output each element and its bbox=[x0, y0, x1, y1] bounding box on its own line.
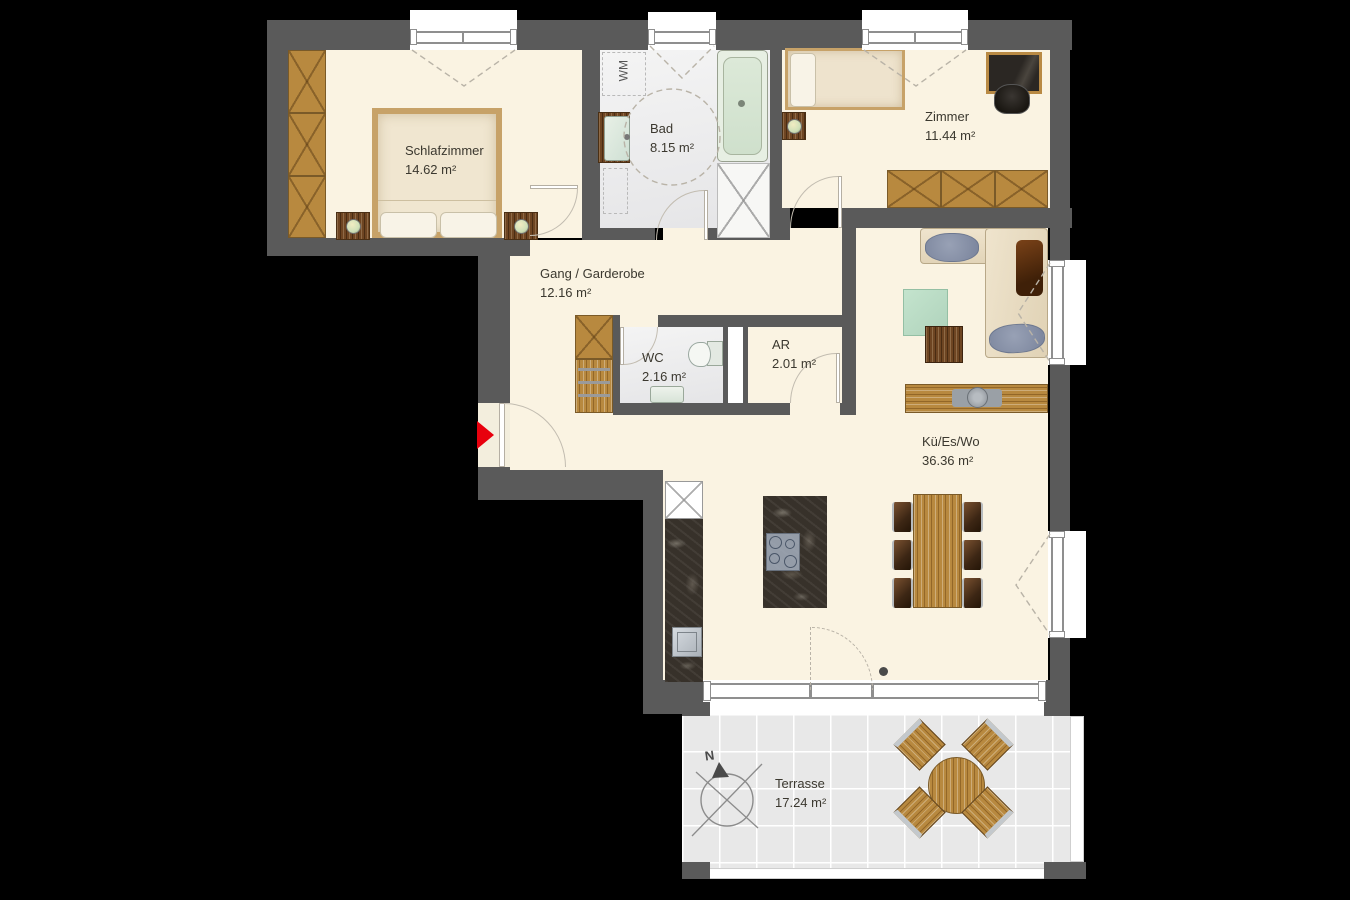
room-label-schlafzimmer: Schlafzimmer 14.62 m² bbox=[405, 142, 484, 180]
wardrobe-icon bbox=[288, 50, 326, 113]
wall bbox=[478, 470, 663, 500]
door-leaf bbox=[836, 353, 840, 403]
wardrobe-icon bbox=[887, 170, 941, 208]
wardrobe-icon bbox=[995, 170, 1048, 208]
window-cap bbox=[1038, 681, 1046, 701]
window-frame bbox=[651, 31, 713, 44]
room-label-ar: AR 2.01 m² bbox=[772, 336, 816, 374]
wall bbox=[643, 476, 663, 690]
wall bbox=[267, 20, 288, 256]
dining-chair-icon bbox=[962, 502, 983, 532]
window-mullion bbox=[462, 31, 464, 44]
towel-radiator bbox=[603, 168, 628, 214]
dining-chair-icon bbox=[892, 578, 913, 608]
wall bbox=[842, 208, 1072, 228]
wall bbox=[743, 315, 748, 415]
wall bbox=[782, 208, 790, 240]
room-name: Zimmer bbox=[925, 109, 969, 124]
window-cap bbox=[1049, 631, 1065, 638]
wall bbox=[658, 315, 848, 327]
sofa-throw bbox=[1016, 240, 1043, 296]
wall bbox=[842, 228, 856, 415]
room-name: Schlafzimmer bbox=[405, 143, 484, 158]
bed-blanket-edge bbox=[378, 200, 496, 201]
wall bbox=[770, 20, 782, 240]
window-cap bbox=[410, 29, 417, 45]
window-cap bbox=[961, 29, 968, 45]
tall-cabinet-icon bbox=[665, 481, 703, 519]
kitchen-sink-basin bbox=[677, 632, 697, 652]
hanger-rail bbox=[578, 381, 610, 384]
wardrobe-icon bbox=[941, 170, 995, 208]
dining-chair-icon bbox=[892, 540, 913, 570]
window-cap bbox=[709, 29, 716, 45]
room-name: AR bbox=[772, 337, 790, 352]
room-area: 36.36 m² bbox=[922, 453, 973, 468]
room-area: 11.44 m² bbox=[925, 128, 975, 143]
window-cap bbox=[1049, 531, 1065, 538]
window-cap bbox=[862, 29, 869, 45]
shower-icon bbox=[717, 163, 770, 238]
window-cap bbox=[648, 29, 655, 45]
wardrobe-icon bbox=[288, 176, 326, 238]
glass-front-frame bbox=[706, 683, 1043, 699]
window-mullion bbox=[914, 31, 916, 44]
dining-chair-icon bbox=[892, 502, 913, 532]
cooktop-burner bbox=[769, 536, 782, 549]
room-label-wc: WC 2.16 m² bbox=[642, 349, 686, 387]
toilet-icon bbox=[688, 342, 711, 367]
terrace-corner-stub bbox=[682, 862, 710, 879]
lamp-icon bbox=[514, 219, 529, 234]
sofa-cushion bbox=[925, 233, 979, 262]
window-frame bbox=[1051, 264, 1064, 361]
hanger-rail bbox=[578, 368, 610, 371]
bed-pillow bbox=[790, 53, 816, 107]
desk-chair-icon bbox=[994, 84, 1030, 114]
bed-pillow bbox=[440, 212, 497, 238]
room-area: 8.15 m² bbox=[650, 140, 694, 155]
room-area: 2.01 m² bbox=[772, 356, 816, 371]
window-cap bbox=[703, 681, 711, 701]
lamp-icon bbox=[787, 119, 802, 134]
floor-terrasse bbox=[682, 714, 1070, 868]
terrace-railing-right bbox=[1070, 716, 1084, 862]
cooktop-burner bbox=[769, 553, 780, 564]
window-cap bbox=[1049, 260, 1065, 267]
door-stop-dot bbox=[879, 667, 888, 676]
wardrobe-icon bbox=[288, 113, 326, 176]
wall bbox=[643, 680, 705, 714]
terrace-corner-stub bbox=[1044, 862, 1086, 879]
window-frame bbox=[1051, 535, 1064, 634]
garderobe-cabinet-icon bbox=[575, 315, 613, 359]
dining-chair-icon bbox=[962, 578, 983, 608]
kitchen-counter bbox=[665, 519, 703, 682]
washing-machine-label: WM bbox=[615, 55, 632, 87]
bathtub-drain bbox=[738, 100, 745, 107]
room-label-kueswo: Kü/Es/Wo 36.36 m² bbox=[922, 433, 980, 471]
room-label-gang: Gang / Garderobe 12.16 m² bbox=[540, 265, 645, 303]
wall bbox=[582, 228, 655, 240]
room-label-bad: Bad 8.15 m² bbox=[650, 120, 694, 158]
door-leaf bbox=[838, 176, 842, 228]
room-area: 17.24 m² bbox=[775, 795, 826, 810]
side-table-icon bbox=[925, 326, 963, 363]
room-name: Kü/Es/Wo bbox=[922, 434, 980, 449]
window-cap bbox=[1049, 358, 1065, 365]
installation-shaft bbox=[728, 327, 743, 403]
window bbox=[410, 10, 517, 50]
terrace-door-leaf bbox=[810, 627, 811, 690]
room-name: WC bbox=[642, 350, 664, 365]
dining-chair-icon bbox=[962, 540, 983, 570]
terrace-railing-bottom bbox=[708, 868, 1046, 879]
dining-table-icon bbox=[913, 494, 962, 608]
room-area: 12.16 m² bbox=[540, 285, 591, 300]
wall bbox=[613, 315, 620, 415]
wc-washbasin-icon bbox=[650, 386, 684, 403]
floorplan-image: WM bbox=[0, 0, 1350, 900]
window bbox=[862, 10, 968, 50]
bed-pillow bbox=[380, 212, 437, 238]
room-name: Bad bbox=[650, 121, 673, 136]
wall bbox=[478, 238, 510, 403]
room-label-terrasse: Terrasse 17.24 m² bbox=[775, 775, 826, 813]
room-name: Gang / Garderobe bbox=[540, 266, 645, 281]
hanger-rail bbox=[578, 394, 610, 397]
door-leaf bbox=[704, 190, 708, 240]
room-name: Terrasse bbox=[775, 776, 825, 791]
wall bbox=[1046, 680, 1070, 714]
faucet-icon bbox=[624, 134, 630, 140]
cooktop-burner bbox=[784, 555, 797, 568]
entrance-arrow-icon bbox=[477, 421, 494, 449]
sideboard-device-dial bbox=[967, 387, 988, 408]
room-area: 14.62 m² bbox=[405, 162, 456, 177]
cooktop-burner bbox=[785, 539, 795, 549]
wall bbox=[613, 403, 790, 415]
room-area: 2.16 m² bbox=[642, 369, 686, 384]
window-cap bbox=[510, 29, 517, 45]
lamp-icon bbox=[346, 219, 361, 234]
room-label-zimmer: Zimmer 11.44 m² bbox=[925, 108, 975, 146]
